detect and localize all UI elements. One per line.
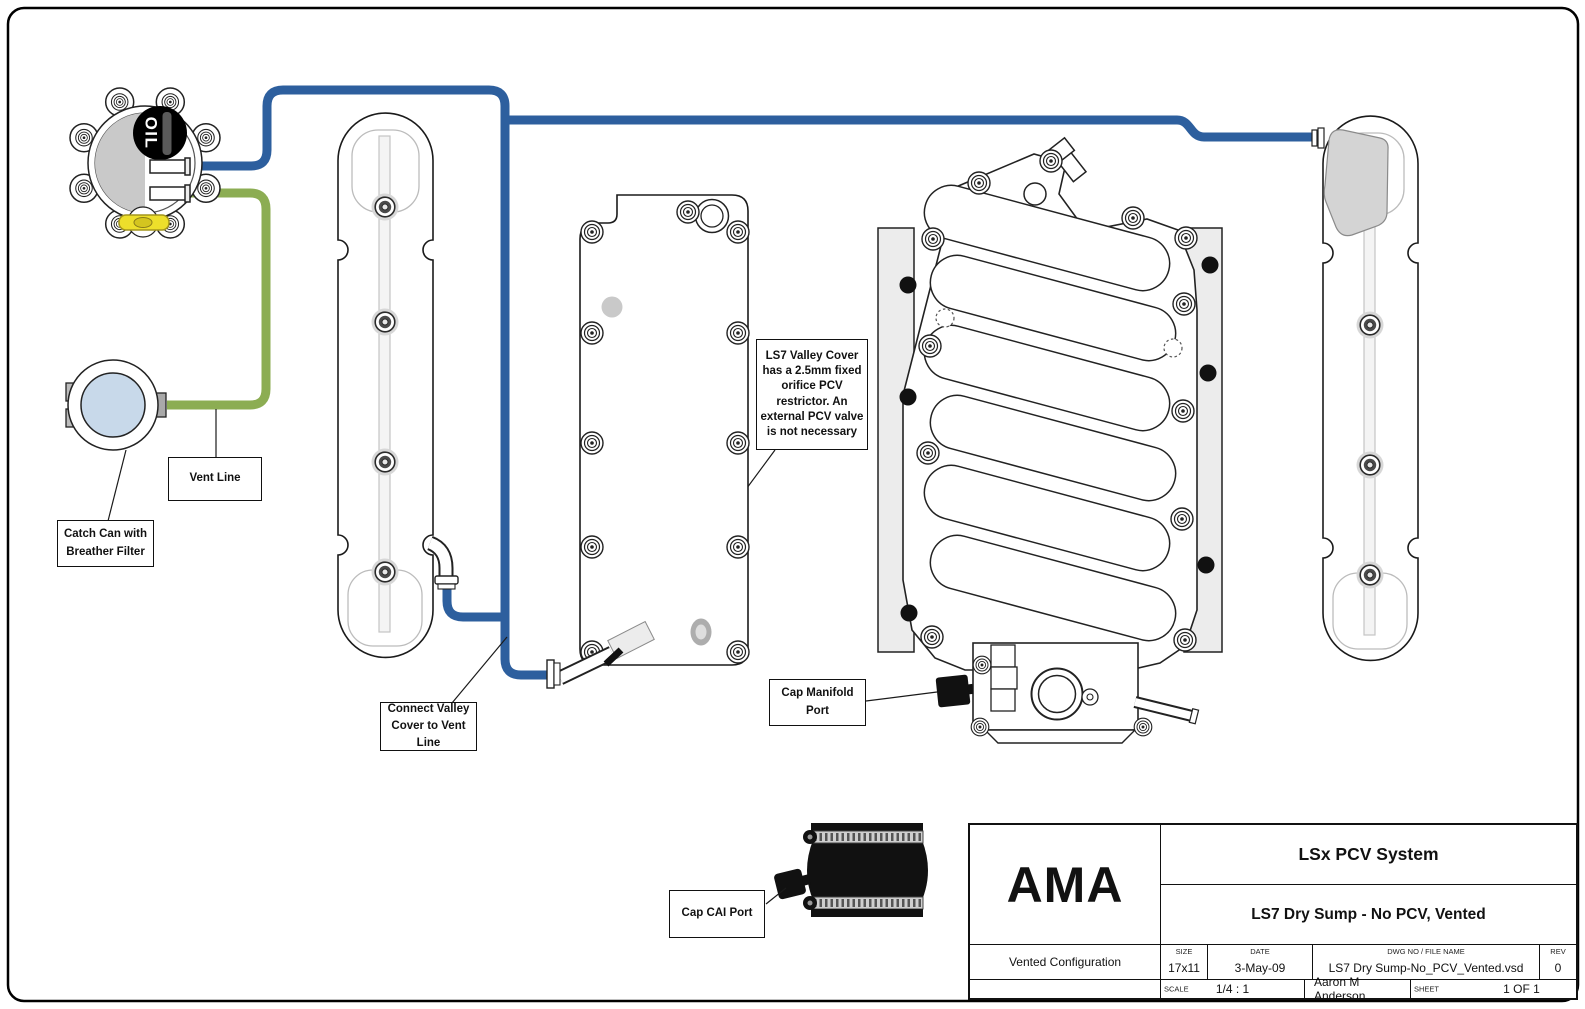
intake-manifold (878, 138, 1222, 743)
drawing-page: OIL (0, 0, 1585, 1009)
valley-cover-note: LS7 Valley Cover has a 2.5mm fixed orifi… (756, 339, 868, 450)
oil-fill-neck (1324, 130, 1388, 236)
size-cell: SIZE 17x11 (1160, 944, 1207, 979)
catch-can-label: Catch Can with Breather Filter (57, 520, 154, 567)
cap-cai-port-label: Cap CAI Port (669, 890, 765, 938)
right-valve-cover (1312, 116, 1418, 660)
author-cell: Aaron M Anderson (1304, 979, 1410, 998)
manifold-top-hole (1024, 183, 1046, 205)
sheet-label: SHEET (1414, 985, 1439, 994)
size-value: 17x11 (1161, 956, 1207, 979)
valley-cover (547, 195, 775, 688)
breather-filter (81, 373, 145, 437)
scale-cell: SCALE 1/4 : 1 (1160, 979, 1304, 998)
connect-valley-label: Connect Valley Cover to Vent Line (380, 702, 477, 751)
oil-cap-text: OIL (142, 117, 161, 150)
sheet-cell: SHEET 1 OF 1 (1410, 979, 1576, 998)
rev-cell: REV 0 (1539, 944, 1576, 979)
size-label: SIZE (1161, 945, 1207, 956)
hose-clamp-top (811, 831, 923, 843)
hose-clamp-bottom (811, 897, 923, 909)
dwg-no-label: DWG NO / FILE NAME (1313, 945, 1539, 956)
date-value: 3-May-09 (1208, 956, 1312, 979)
drawing-title: LSx PCV System (1160, 825, 1576, 884)
configuration-cell: Vented Configuration (970, 944, 1160, 979)
date-label: DATE (1208, 945, 1312, 956)
rev-value: 0 (1540, 956, 1576, 979)
company-logo: AMA (970, 825, 1160, 944)
vent-line-label: Vent Line (168, 457, 262, 501)
rev-label: REV (1540, 945, 1576, 956)
drawing-subtitle: LS7 Dry Sump - No PCV, Vented (1160, 884, 1576, 944)
dwg-no-cell: DWG NO / FILE NAME LS7 Dry Sump-No_PCV_V… (1312, 944, 1539, 979)
scale-label: SCALE (1164, 985, 1189, 994)
blank-cell (970, 979, 1160, 998)
title-block: AMA LSx PCV System LS7 Dry Sump - No PCV… (968, 823, 1578, 1000)
cap-manifold-port-label: Cap Manifold Port (769, 679, 866, 726)
date-cell: DATE 3-May-09 (1207, 944, 1312, 979)
